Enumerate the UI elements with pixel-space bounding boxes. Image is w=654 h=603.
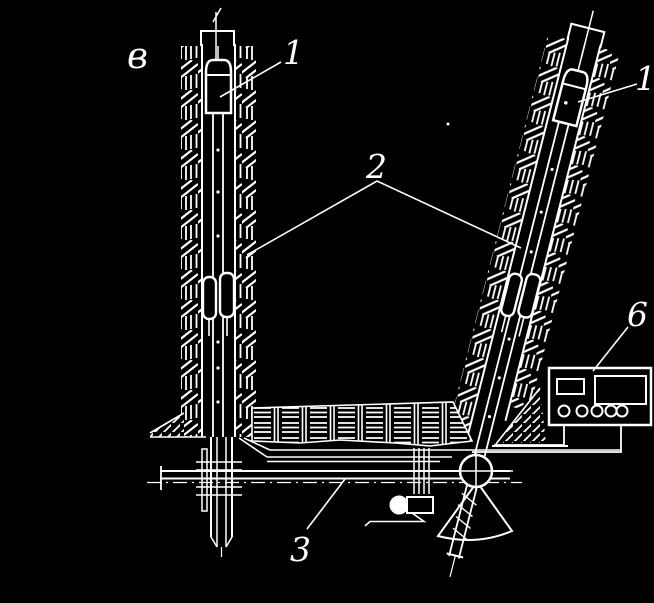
callout-2: 2 (365, 147, 387, 186)
rubble-band (252, 402, 472, 446)
callout-3: 3 (290, 530, 311, 569)
callout-1-left: 1 (283, 33, 304, 72)
speck (447, 123, 450, 126)
left-borehole-left-wall (181, 46, 202, 437)
left-borehole-right-wall (235, 46, 256, 437)
figure-canvas: в 1 1 2 3 6 (0, 0, 654, 603)
instrument-unit (549, 368, 651, 425)
diagram-svg: в 1 1 2 3 6 (0, 0, 654, 603)
callout-1-right: 1 (635, 59, 654, 98)
callout-6: 6 (627, 295, 648, 334)
panel-label: в (127, 36, 148, 77)
